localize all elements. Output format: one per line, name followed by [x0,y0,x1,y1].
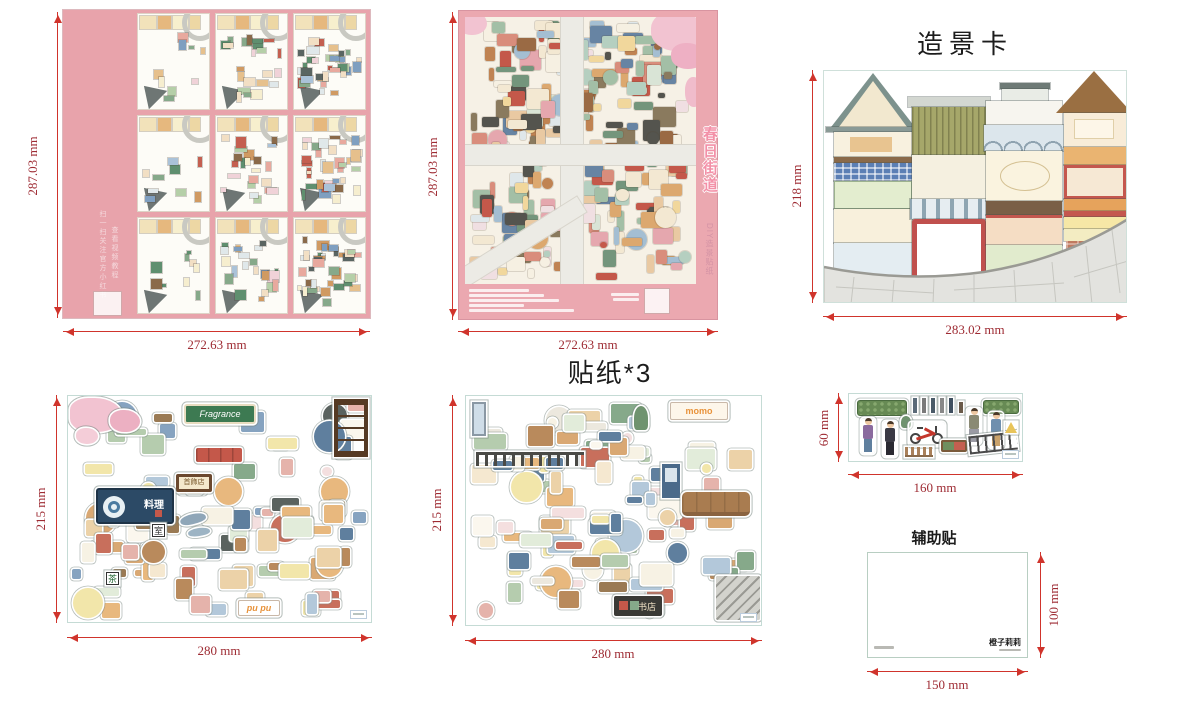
mini-scene [137,115,210,212]
tile [151,279,163,289]
dim-scene-width-label: 283.02 mm [910,322,1040,338]
scene-card-sheet [823,70,1127,303]
tile [257,80,269,86]
tile [330,136,340,139]
dim-scene-width [823,316,1127,317]
tile [340,140,346,144]
tile [321,288,330,296]
restaurant-sign-sticker: 料理 [96,488,174,524]
tile [319,139,329,148]
shark-sticker [187,526,210,538]
tile [263,71,271,77]
tile [232,266,236,277]
sofa-sticker [682,492,750,516]
tile [320,89,324,93]
tile [236,137,246,148]
tile [254,157,260,163]
tile [339,51,344,56]
dim-sheet1-width [67,637,372,638]
tile [259,297,264,301]
bookstore-sign-sticker: 书店 [614,596,662,616]
tile [346,50,351,55]
backing-board-sheet: 扫一扫关注官方小红书 查看视频教程 [63,10,370,318]
tile [222,257,230,266]
tile [176,189,186,196]
sheet2-features: momo 书店 [466,396,761,625]
shark-sticker [179,511,207,527]
tile [192,79,198,84]
tile [299,268,306,275]
tile [184,278,189,286]
tile [273,280,278,291]
tile [348,250,355,254]
tile [301,76,313,83]
tile [234,154,241,162]
tile [340,57,345,62]
tile [221,247,227,254]
tile [267,188,279,194]
tile [307,288,318,293]
tile [235,147,247,151]
tile [345,274,355,282]
dim-sheet1-height-label: 215 mm [33,474,49,544]
tile [250,259,257,266]
dim-strip-width [848,474,1023,475]
tile [303,138,311,142]
dim-board-height [57,12,58,318]
figure-strip-sheet [848,393,1023,462]
tile [298,286,301,290]
tile [249,176,258,182]
tile [234,247,241,251]
tile [298,50,303,56]
tile [262,271,269,280]
tile [329,245,337,251]
tile [250,193,258,198]
tile [330,56,340,61]
window-sticker [472,402,486,436]
tile [262,290,268,296]
tile [187,251,192,254]
tile [221,188,226,192]
tile [195,192,201,201]
dim-board-height-label: 287.03 mm [25,121,41,211]
dim-aux-width [867,671,1028,672]
dim-strip-width-label: 160 mm [870,480,1000,496]
tea-sign-sticker: 茶 [106,572,119,585]
dim-aux-width-label: 150 mm [882,677,1012,693]
tile [328,281,333,285]
mini-scene [215,217,288,314]
tile [148,189,158,192]
picket-fence-sticker [905,447,933,457]
tile [302,156,311,163]
mini-scene [293,217,366,314]
dim-sheet1-height [56,395,57,623]
person-sticker [861,418,875,454]
dim-sheet2-width [465,640,762,641]
tile [179,40,187,49]
tile [194,264,199,272]
tile [244,78,256,86]
aux-title: 辅助贴 [884,527,984,548]
shop-sign-sticker [941,440,967,452]
tile [254,267,259,274]
tile [255,246,262,250]
tile [266,162,271,170]
tile [339,163,346,167]
mini-scene [293,115,366,212]
dim-sheet2-height-label: 215 mm [429,475,445,545]
tile [275,69,281,77]
tile [164,96,175,102]
dim-poster-height [452,12,453,320]
board-side-text-2: 查看视频教程 [109,226,119,296]
brand-mark: 橙子莉莉 [989,637,1021,651]
tile [198,157,201,167]
tile [330,68,340,72]
tile [243,262,248,269]
bicycle-sticker [909,422,945,446]
fence-sticker [476,452,584,466]
dim-scene-height [812,70,813,303]
tile [222,135,229,141]
tile [354,186,360,195]
tile [333,179,339,183]
tile [313,259,324,267]
tile [303,287,307,296]
tile [350,285,360,291]
tile [303,237,307,243]
balcony-sticker [334,399,368,457]
poster-roads [465,17,696,284]
aux-sheet: 橙子莉莉 [867,552,1028,658]
tile [153,175,164,180]
poster-info-strip [465,285,691,315]
dim-strip-height [838,393,839,462]
room-sign-sticker: 室 [152,524,165,537]
tile [257,48,266,53]
tile [239,253,248,257]
brand-name: 橙子莉莉 [989,637,1021,648]
tile [347,158,350,164]
tile [223,43,233,48]
mini-scene [137,13,210,110]
pupu-sign-sticker: pu pu [238,600,280,616]
tile [228,174,240,178]
tile [323,72,329,82]
tile [143,170,149,178]
tile [185,254,189,261]
jewelry-sign-sticker: 首飾店 [176,474,212,492]
tile [307,171,311,174]
plant-sticker [634,406,648,430]
tile [260,241,266,247]
tile [270,82,278,87]
dim-poster-height-label: 287.03 mm [425,122,441,212]
tile [237,67,245,71]
tile [189,46,194,49]
tile [352,167,360,171]
mini-scene [215,13,288,110]
tile [252,39,262,44]
tile [331,91,338,95]
sheet1-features: Fragrance 首飾店 料理 室 茶 pu pu [68,396,371,622]
dim-scene-height-label: 218 mm [789,151,805,221]
tile [251,90,262,100]
mini-scene-grid [137,13,367,315]
dim-poster-width-label: 272.63 mm [523,337,653,353]
tile [196,291,200,300]
tile [170,165,180,174]
tile [323,162,333,173]
tile [311,280,315,288]
tile [309,267,314,271]
tile [248,182,255,187]
tile [145,196,154,202]
tile [235,290,246,300]
scene-card-title: 造景卡 [880,24,1050,61]
poster-vertical-subtitle: DIY造景贴纸 [704,223,715,285]
tile [201,48,205,55]
tile [352,136,359,145]
qr-code [93,291,122,316]
tile [322,244,327,251]
tile [232,161,238,167]
dim-board-width-label: 272.63 mm [152,337,282,353]
tile [262,179,271,186]
mini-scene [137,217,210,314]
tile [309,38,320,45]
tile [324,184,335,191]
sticker-sheet-2: momo 书店 [465,395,762,626]
tile [304,251,309,259]
dim-board-width [63,331,370,332]
momo-sign-sticker: momo [670,402,728,420]
tile [245,158,250,166]
tile [329,146,336,154]
poster-art [465,17,696,284]
mini-scene [293,13,366,110]
tile [323,299,331,306]
vending-machine-sticker [662,464,680,498]
dim-aux-height-label: 100 mm [1046,570,1062,640]
dim-poster-width [458,331,718,332]
tile [329,45,338,51]
stickers-title: 贴纸*3 [530,353,690,390]
tile [307,47,319,54]
red-counter-sticker [196,448,242,462]
tile [317,180,323,189]
poster-sheet: 春日街道 DIY造景贴纸 [458,10,718,320]
tile [351,150,359,160]
hedge-sticker [857,400,907,416]
tile [333,195,340,204]
dim-sheet2-width-label: 280 mm [548,646,678,662]
tile [264,39,274,42]
tile [151,262,162,273]
tile [225,274,233,283]
cone-sticker [1005,422,1017,433]
dim-aux-height [1040,552,1041,658]
tile [341,178,345,183]
tile [247,35,252,45]
tile [303,143,307,149]
qr-code [644,288,670,314]
dim-sheet1-width-label: 280 mm [154,643,284,659]
mini-scene [215,115,288,212]
page-tag [1002,450,1019,459]
fragrance-sign-sticker: Fragrance [184,404,256,424]
tile [321,82,326,88]
tile [353,62,360,72]
sticker-sheet-1: Fragrance 首飾店 料理 室 茶 pu pu [67,395,372,623]
person-sticker [883,421,897,457]
tile [302,190,306,200]
tile [268,144,276,148]
tile [252,169,261,172]
tile [306,280,310,287]
tile [278,49,281,58]
page-tag [350,610,367,619]
stone-road [824,71,1127,303]
strip-features [849,394,1022,461]
tile [168,158,177,165]
page-tag [740,613,757,622]
tile [237,92,242,102]
tile [244,93,251,96]
micro-text [874,646,894,649]
tile [312,58,318,64]
poster-vertical-title: 春日街道 [699,126,720,222]
tile [159,77,165,87]
dim-sheet2-height [452,395,453,626]
dim-strip-height-label: 60 mm [816,398,832,458]
tile [329,267,339,275]
